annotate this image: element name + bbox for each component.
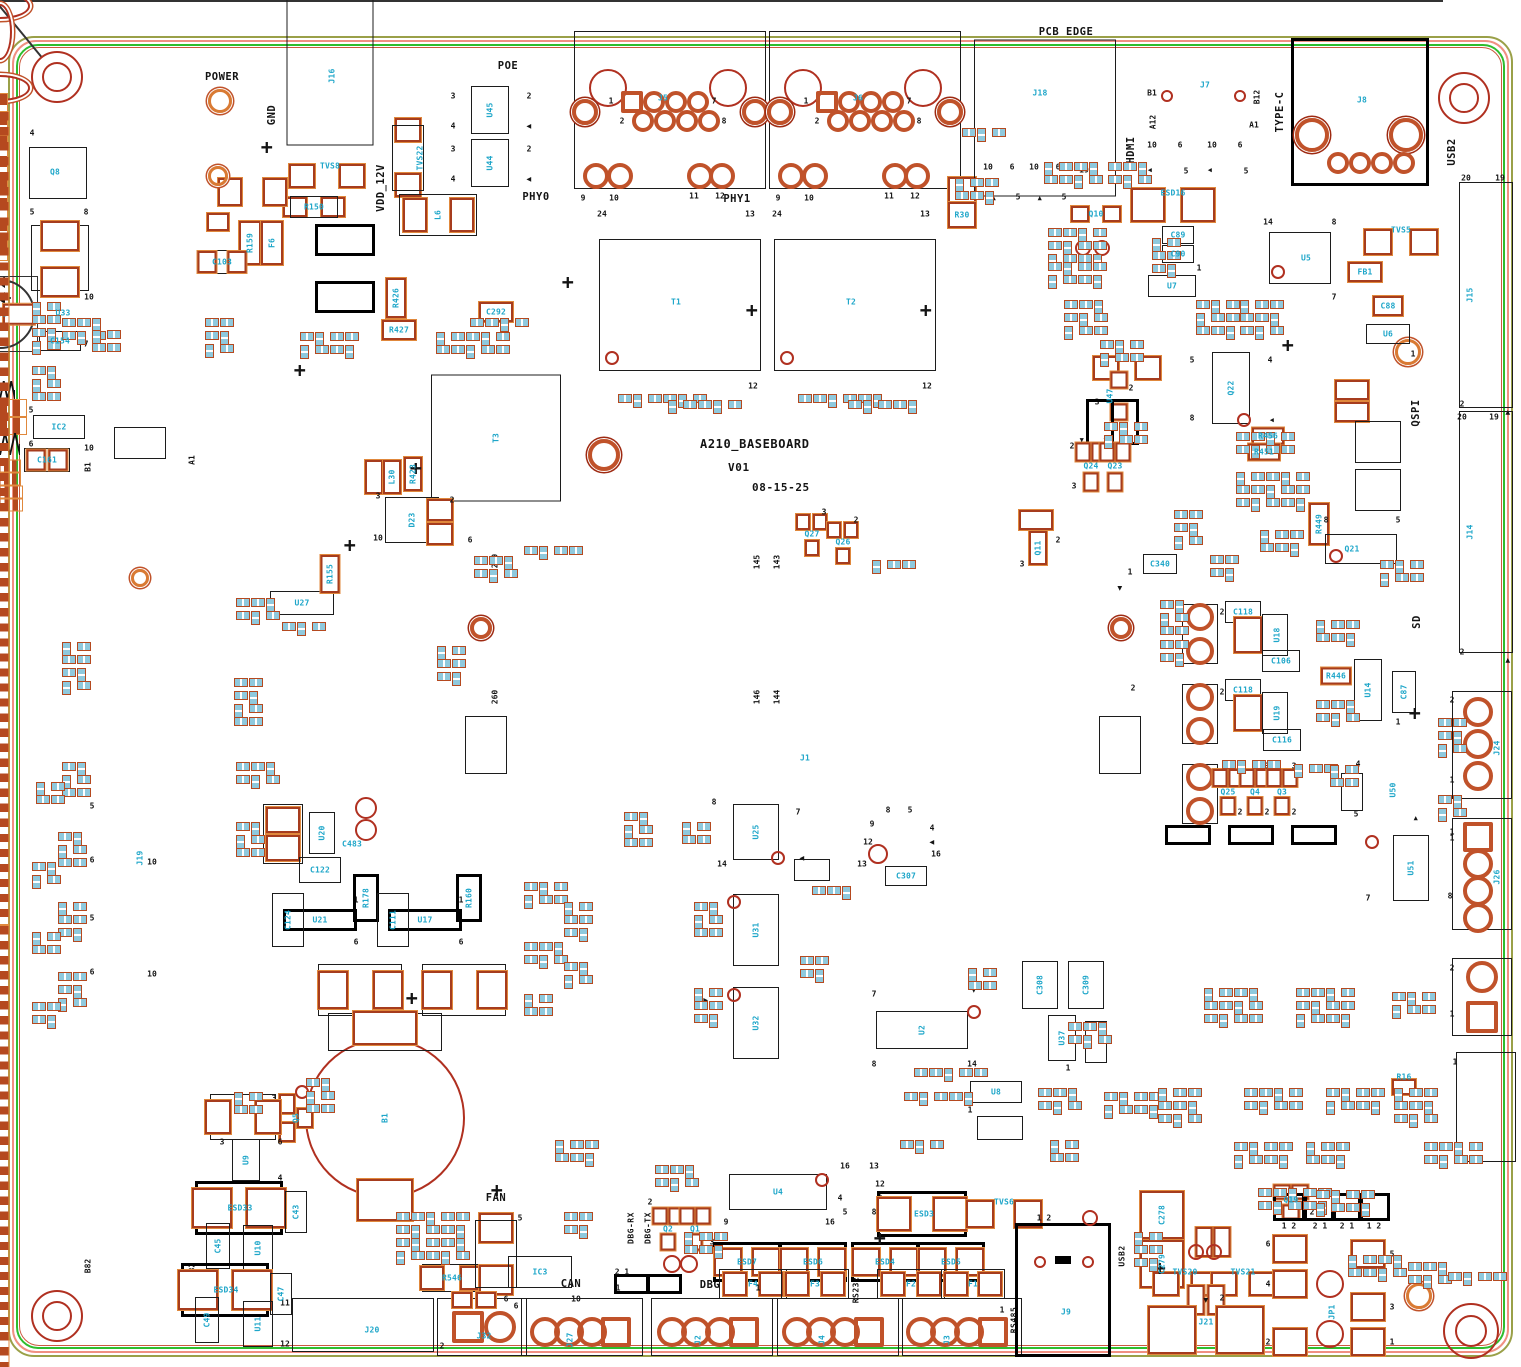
ref-esd3[interactable]: ESD3 bbox=[914, 1210, 934, 1219]
ref-j8[interactable]: J8 bbox=[1357, 96, 1367, 105]
pad[interactable] bbox=[1273, 1270, 1307, 1298]
ring[interactable] bbox=[1349, 152, 1371, 174]
ref-r155[interactable]: R155 bbox=[326, 564, 335, 584]
ref-jp1[interactable]: JP1 bbox=[1328, 1304, 1337, 1319]
pad[interactable] bbox=[1273, 1328, 1307, 1356]
txt--[interactable]: ▼ bbox=[1080, 436, 1085, 444]
hole[interactable] bbox=[1295, 118, 1329, 152]
ref-c278[interactable]: C278 bbox=[1158, 1205, 1167, 1225]
pad[interactable] bbox=[1248, 797, 1263, 815]
txt-usb2[interactable]: USB2 bbox=[1446, 138, 1458, 165]
pad[interactable] bbox=[1275, 797, 1290, 815]
ref-b1[interactable]: B1 bbox=[381, 1113, 390, 1123]
ring[interactable] bbox=[601, 1317, 631, 1347]
ring[interactable] bbox=[1463, 822, 1493, 852]
ref-q26[interactable]: Q26 bbox=[835, 538, 850, 547]
ring[interactable] bbox=[978, 1317, 1008, 1347]
txt--[interactable]: ◀ bbox=[526, 122, 531, 131]
ref-c43[interactable]: C43 bbox=[292, 1204, 301, 1219]
ref-u32[interactable]: U32 bbox=[752, 1015, 761, 1030]
ref-c87[interactable]: C87 bbox=[1400, 684, 1409, 699]
ref-q2[interactable]: Q2 bbox=[663, 1225, 673, 1234]
bbox[interactable] bbox=[315, 224, 375, 256]
pad[interactable] bbox=[836, 548, 850, 564]
ref-u7[interactable]: U7 bbox=[1167, 282, 1177, 291]
ref-j6[interactable]: J6 bbox=[853, 94, 863, 103]
ref-q11[interactable]: Q11 bbox=[1034, 540, 1043, 555]
pad[interactable] bbox=[1108, 473, 1123, 492]
bbox[interactable] bbox=[315, 281, 375, 313]
passive-component bbox=[1454, 1155, 1468, 1164]
txt--[interactable]: ▼ bbox=[1117, 584, 1122, 593]
ref-r159[interactable]: R159 bbox=[246, 233, 255, 253]
ring[interactable] bbox=[1463, 761, 1493, 791]
ref-c279[interactable]: C279 bbox=[1158, 1254, 1167, 1274]
ref-r30[interactable]: R30 bbox=[954, 211, 969, 220]
pad[interactable] bbox=[933, 1197, 967, 1231]
ref-c483[interactable]: C483 bbox=[342, 840, 362, 849]
pad[interactable] bbox=[1181, 188, 1215, 222]
ref-tvs22[interactable]: TVS22 bbox=[416, 145, 425, 170]
pad[interactable] bbox=[1076, 443, 1091, 462]
box[interactable] bbox=[1355, 469, 1401, 511]
ref-u33[interactable]: U33 bbox=[55, 309, 70, 318]
ring[interactable] bbox=[654, 110, 676, 132]
passive-component bbox=[878, 400, 892, 409]
ref-u20[interactable]: U20 bbox=[318, 825, 327, 840]
ref-f4[interactable]: F4 bbox=[748, 1280, 758, 1289]
pad[interactable] bbox=[422, 971, 452, 1009]
ref-f3[interactable]: F3 bbox=[810, 1280, 820, 1289]
ring[interactable] bbox=[904, 163, 930, 189]
txt--[interactable]: ▲ bbox=[1505, 656, 1510, 665]
pad[interactable] bbox=[41, 221, 79, 251]
pad[interactable] bbox=[1213, 769, 1228, 787]
box[interactable] bbox=[1355, 421, 1401, 463]
txt--[interactable]: ◀ bbox=[1270, 416, 1275, 424]
ref-q22[interactable]: Q22 bbox=[1227, 380, 1236, 395]
pad[interactable] bbox=[1335, 402, 1369, 422]
ref-u45[interactable]: U45 bbox=[486, 102, 495, 117]
hole[interactable] bbox=[1389, 118, 1423, 152]
pad[interactable] bbox=[1234, 617, 1262, 653]
box[interactable] bbox=[1099, 716, 1141, 774]
pad[interactable] bbox=[353, 1011, 417, 1045]
ring[interactable] bbox=[676, 110, 698, 132]
pad[interactable] bbox=[785, 1272, 809, 1296]
hole[interactable] bbox=[588, 439, 620, 471]
pad[interactable] bbox=[192, 1188, 232, 1228]
ref-j16[interactable]: J16 bbox=[328, 68, 337, 83]
ref-c103[interactable]: C103 bbox=[212, 258, 232, 267]
ring[interactable] bbox=[1186, 683, 1214, 711]
bbox[interactable] bbox=[1291, 825, 1337, 845]
ref-r150[interactable]: R150 bbox=[304, 203, 324, 212]
ref-q1[interactable]: Q1 bbox=[690, 1225, 700, 1234]
pad[interactable] bbox=[661, 1234, 676, 1251]
txt--[interactable]: ◀ bbox=[1208, 166, 1213, 174]
ref-esd5[interactable]: ESD5 bbox=[941, 1258, 961, 1267]
txt-usb2[interactable]: USB2 bbox=[1118, 1245, 1127, 1266]
ref-u51[interactable]: U51 bbox=[1407, 860, 1416, 875]
ref-r160[interactable]: R160 bbox=[465, 888, 474, 908]
hole[interactable] bbox=[767, 99, 793, 125]
ref-c340[interactable]: C340 bbox=[1150, 560, 1170, 569]
ref-q27[interactable]: Q27 bbox=[804, 530, 819, 539]
txt--[interactable]: ▲ bbox=[1414, 814, 1419, 822]
ref-j7[interactable]: J7 bbox=[1200, 81, 1210, 90]
ref-r456[interactable]: R456 bbox=[1258, 432, 1278, 441]
ref-u31[interactable]: U31 bbox=[752, 922, 761, 937]
ref-q4[interactable]: Q4 bbox=[1250, 788, 1260, 797]
ref-j1[interactable]: J1 bbox=[800, 754, 810, 763]
ref-j21[interactable]: J21 bbox=[1198, 1318, 1213, 1327]
ref-c308[interactable]: C308 bbox=[1036, 975, 1045, 995]
hole[interactable] bbox=[131, 569, 149, 587]
ref-c307[interactable]: C307 bbox=[896, 872, 916, 881]
hole[interactable] bbox=[208, 89, 232, 113]
ring[interactable] bbox=[778, 163, 804, 189]
pad[interactable] bbox=[978, 1272, 1002, 1296]
ref-esd4[interactable]: ESD4 bbox=[875, 1258, 895, 1267]
pad[interactable] bbox=[1019, 510, 1053, 530]
ref-r451[interactable]: R451 bbox=[1254, 448, 1274, 457]
bbox[interactable] bbox=[1015, 1223, 1111, 1357]
txt-phy0[interactable]: PHY0 bbox=[522, 191, 549, 203]
vpads[interactable] bbox=[0, 111, 10, 925]
txt--[interactable]: ◀ bbox=[929, 838, 934, 847]
box[interactable] bbox=[465, 716, 507, 774]
ref-u21[interactable]: U21 bbox=[312, 916, 327, 925]
ref-c106[interactable]: C106 bbox=[1271, 657, 1291, 666]
ref-c116[interactable]: C116 bbox=[1272, 736, 1292, 745]
ref-j15[interactable]: J15 bbox=[1466, 287, 1475, 302]
pad[interactable] bbox=[805, 540, 819, 556]
box[interactable] bbox=[794, 859, 830, 881]
ref-u25[interactable]: U25 bbox=[752, 824, 761, 839]
ref-j9[interactable]: J9 bbox=[1061, 1308, 1071, 1317]
ref-l6[interactable]: L6 bbox=[434, 210, 443, 220]
pad[interactable] bbox=[1148, 1306, 1196, 1354]
ref-j5[interactable]: J5 bbox=[658, 94, 668, 103]
ref-q25[interactable]: Q25 bbox=[1220, 788, 1235, 797]
pad[interactable] bbox=[1071, 206, 1089, 222]
pad[interactable] bbox=[1221, 797, 1236, 815]
ring[interactable] bbox=[854, 1317, 884, 1347]
ref-j4[interactable]: J4 bbox=[818, 1335, 827, 1345]
ref-c90[interactable]: C90 bbox=[1170, 250, 1185, 259]
ring[interactable] bbox=[698, 110, 720, 132]
pad[interactable] bbox=[289, 164, 315, 188]
txt--[interactable]: ◀ bbox=[1148, 166, 1153, 174]
pad[interactable] bbox=[207, 213, 229, 231]
ring[interactable] bbox=[1327, 152, 1349, 174]
ref-c45[interactable]: C45 bbox=[214, 1238, 223, 1253]
box[interactable] bbox=[1456, 1052, 1516, 1162]
ref-fb1[interactable]: FB1 bbox=[1357, 268, 1372, 277]
box[interactable] bbox=[977, 1116, 1023, 1140]
pad[interactable] bbox=[1410, 229, 1438, 255]
pad[interactable] bbox=[827, 522, 841, 538]
txt-sd[interactable]: SD bbox=[1411, 615, 1423, 629]
pad[interactable] bbox=[263, 178, 287, 206]
ref-q10[interactable]: Q10 bbox=[1088, 210, 1103, 219]
ref-j3[interactable]: J3 bbox=[943, 1335, 952, 1345]
pad[interactable] bbox=[41, 267, 79, 297]
pad[interactable] bbox=[759, 1272, 783, 1296]
ref-q24[interactable]: Q24 bbox=[1083, 462, 1098, 471]
ring[interactable] bbox=[1466, 1001, 1498, 1033]
ref-u18[interactable]: U18 bbox=[1273, 627, 1282, 642]
ref-c118[interactable]: C118 bbox=[1233, 686, 1253, 695]
ref-tvs5[interactable]: TVS5 bbox=[1391, 226, 1411, 235]
ref-q8[interactable]: Q8 bbox=[50, 168, 60, 177]
ring[interactable] bbox=[709, 163, 735, 189]
pad[interactable] bbox=[365, 460, 383, 494]
pad[interactable] bbox=[1335, 380, 1369, 400]
pad[interactable] bbox=[279, 1094, 295, 1114]
ref-tvs20[interactable]: TVS20 bbox=[1172, 1268, 1197, 1277]
ring[interactable] bbox=[1186, 717, 1214, 745]
pad[interactable] bbox=[452, 1292, 472, 1308]
pad[interactable] bbox=[723, 1272, 747, 1296]
ref-c154[interactable]: C154 bbox=[50, 337, 70, 346]
txt-type-c[interactable]: TYPE-C bbox=[1274, 92, 1286, 133]
ref-t3[interactable]: T3 bbox=[492, 433, 501, 443]
ref-c124[interactable]: C124 bbox=[284, 910, 293, 930]
ref-u4[interactable]: U4 bbox=[773, 1188, 783, 1197]
ring[interactable] bbox=[729, 1317, 759, 1347]
ring[interactable] bbox=[607, 163, 633, 189]
ref-u47[interactable]: U47 bbox=[1106, 388, 1115, 403]
ref-j18[interactable]: J18 bbox=[1032, 89, 1047, 98]
ring[interactable] bbox=[1463, 876, 1493, 906]
ref-c47[interactable]: C47 bbox=[277, 1286, 286, 1301]
hole[interactable] bbox=[742, 99, 768, 125]
txt-poe[interactable]: POE bbox=[498, 60, 518, 72]
txt-hdmi[interactable]: HDMI bbox=[1125, 136, 1137, 163]
ref-c292[interactable]: C292 bbox=[486, 308, 506, 317]
hole[interactable] bbox=[937, 99, 963, 125]
ref-r426[interactable]: R426 bbox=[392, 288, 401, 308]
ref-j27[interactable]: J27 bbox=[566, 1332, 575, 1347]
ref-r423[interactable]: R423 bbox=[409, 464, 418, 484]
ref-tvs21[interactable]: TVS21 bbox=[1230, 1268, 1255, 1277]
ref-j20[interactable]: J20 bbox=[364, 1326, 379, 1335]
ref-ic2[interactable]: IC2 bbox=[51, 423, 66, 432]
ref-c111[interactable]: C111 bbox=[389, 910, 398, 930]
ref-u17[interactable]: U17 bbox=[417, 916, 432, 925]
txt--[interactable]: ▲ bbox=[1038, 194, 1043, 202]
ref-esd34[interactable]: ESD34 bbox=[213, 1286, 238, 1295]
pad[interactable] bbox=[917, 1272, 941, 1296]
ref-u6[interactable]: U6 bbox=[1383, 330, 1393, 339]
txt-dbg-tx[interactable]: DBG-TX bbox=[644, 1212, 653, 1244]
ring[interactable] bbox=[1371, 152, 1393, 174]
ref-c309[interactable]: C309 bbox=[1082, 975, 1091, 995]
ref-r16[interactable]: R16 bbox=[1396, 1073, 1411, 1082]
pad[interactable] bbox=[680, 1208, 695, 1225]
pad[interactable] bbox=[1364, 229, 1392, 255]
pad[interactable] bbox=[205, 1100, 231, 1134]
ring[interactable] bbox=[1463, 903, 1493, 933]
ref-r546[interactable]: R546 bbox=[442, 1274, 462, 1283]
ring[interactable] bbox=[1466, 961, 1498, 993]
pad[interactable] bbox=[696, 1208, 711, 1225]
ref-j24[interactable]: J24 bbox=[1493, 740, 1502, 755]
pn-1: 1 bbox=[616, 1284, 621, 1293]
txt-qspi[interactable]: QSPI bbox=[1410, 399, 1422, 426]
txt-pcb-edge[interactable]: PCB EDGE bbox=[1039, 26, 1094, 38]
pad[interactable] bbox=[881, 1272, 905, 1296]
ref-j2[interactable]: J2 bbox=[694, 1335, 703, 1345]
ref-tvs6[interactable]: TVS6 bbox=[994, 1198, 1014, 1207]
ref-c161[interactable]: C161 bbox=[37, 456, 57, 465]
ref-c49[interactable]: C49 bbox=[203, 1312, 212, 1327]
ref-c89[interactable]: C89 bbox=[1170, 231, 1185, 240]
pad[interactable] bbox=[420, 1266, 444, 1290]
ref-j14[interactable]: J14 bbox=[1466, 524, 1475, 539]
ref-t1[interactable]: T1 bbox=[671, 298, 681, 307]
ref-t2[interactable]: T2 bbox=[846, 298, 856, 307]
ring[interactable] bbox=[849, 110, 871, 132]
pad[interactable] bbox=[821, 1272, 845, 1296]
ref-j32[interactable]: J32 bbox=[476, 1332, 491, 1341]
txt--[interactable]: ◀ bbox=[526, 175, 531, 184]
ref-u2[interactable]: U2 bbox=[918, 1025, 927, 1035]
txt-gnd[interactable]: GND bbox=[266, 105, 278, 125]
pad[interactable] bbox=[1234, 695, 1262, 731]
ref-u8[interactable]: U8 bbox=[991, 1088, 1001, 1097]
ref-u19[interactable]: U19 bbox=[1273, 705, 1282, 720]
ref-ic3[interactable]: IC3 bbox=[532, 1268, 547, 1277]
ref-u37[interactable]: U37 bbox=[1058, 1030, 1067, 1045]
txt-phy1[interactable]: PHY1 bbox=[723, 193, 750, 205]
ring[interactable] bbox=[1186, 797, 1214, 825]
pad[interactable] bbox=[339, 164, 365, 188]
pad[interactable] bbox=[427, 523, 453, 545]
passive-component bbox=[1160, 613, 1169, 627]
pad[interactable] bbox=[1351, 1328, 1385, 1356]
ref-f6[interactable]: F6 bbox=[268, 238, 277, 248]
ring[interactable] bbox=[1463, 729, 1493, 759]
ref-j26[interactable]: J26 bbox=[1493, 869, 1502, 884]
ring[interactable] bbox=[827, 110, 849, 132]
pad[interactable] bbox=[318, 971, 348, 1009]
box[interactable] bbox=[263, 804, 303, 864]
pad[interactable] bbox=[1267, 769, 1282, 787]
pad[interactable] bbox=[1111, 372, 1128, 389]
hole[interactable] bbox=[572, 99, 598, 125]
ref-esd16[interactable]: ESD16 bbox=[1160, 189, 1185, 198]
box[interactable] bbox=[292, 1298, 434, 1352]
ring[interactable] bbox=[1186, 637, 1214, 665]
pad[interactable] bbox=[1351, 1293, 1385, 1321]
ring[interactable] bbox=[802, 163, 828, 189]
pad[interactable] bbox=[653, 1208, 668, 1225]
pad[interactable] bbox=[1116, 443, 1131, 462]
txt--[interactable]: ▼ bbox=[1203, 1296, 1208, 1305]
pad[interactable] bbox=[944, 1272, 968, 1296]
pad[interactable] bbox=[476, 1292, 496, 1308]
bbox[interactable] bbox=[646, 1274, 682, 1294]
ring[interactable] bbox=[583, 163, 609, 189]
ref-f2[interactable]: F2 bbox=[906, 1280, 916, 1289]
txt-dbg-rx[interactable]: DBG-RX bbox=[627, 1212, 636, 1244]
ref-esd33[interactable]: ESD33 bbox=[227, 1204, 252, 1213]
ref-c122[interactable]: C122 bbox=[310, 866, 330, 875]
ref-r449[interactable]: R449 bbox=[1315, 514, 1324, 534]
bbox[interactable] bbox=[1165, 825, 1211, 845]
ref-r178[interactable]: R178 bbox=[362, 888, 371, 908]
ref-j19[interactable]: J19 bbox=[136, 850, 145, 865]
box[interactable] bbox=[114, 427, 166, 459]
passive-component bbox=[1134, 1092, 1148, 1101]
passive-component bbox=[694, 928, 708, 937]
ref-u5[interactable]: U5 bbox=[1301, 254, 1311, 263]
ref-q19[interactable]: Q19 bbox=[1283, 1196, 1298, 1205]
pad[interactable] bbox=[1216, 1306, 1264, 1354]
ring[interactable] bbox=[871, 110, 893, 132]
ring[interactable] bbox=[1186, 603, 1214, 631]
pad[interactable] bbox=[373, 971, 403, 1009]
hole[interactable] bbox=[208, 166, 228, 186]
ref-u9[interactable]: U9 bbox=[242, 1155, 251, 1165]
ref-esd7[interactable]: ESD7 bbox=[737, 1258, 757, 1267]
ring[interactable] bbox=[893, 110, 915, 132]
ref-u27[interactable]: U27 bbox=[294, 599, 309, 608]
ref-q3[interactable]: Q3 bbox=[1277, 788, 1287, 797]
pad[interactable] bbox=[1084, 473, 1099, 492]
ref-d23[interactable]: D23 bbox=[408, 512, 417, 527]
hole[interactable] bbox=[1110, 617, 1132, 639]
ring[interactable] bbox=[632, 110, 654, 132]
pad[interactable] bbox=[796, 514, 810, 530]
ring[interactable] bbox=[1463, 849, 1493, 879]
hole[interactable] bbox=[470, 617, 492, 639]
ref-esd6[interactable]: ESD6 bbox=[803, 1258, 823, 1267]
pad[interactable] bbox=[1273, 1235, 1307, 1263]
ref-f1[interactable]: F1 bbox=[968, 1280, 978, 1289]
ref-u44[interactable]: U44 bbox=[486, 155, 495, 170]
pn-11: 11 bbox=[689, 192, 699, 201]
ref-l30[interactable]: L30 bbox=[388, 469, 397, 484]
ref-q21[interactable]: Q21 bbox=[1344, 545, 1359, 554]
ref-c118[interactable]: C118 bbox=[1233, 608, 1253, 617]
pad[interactable] bbox=[1103, 206, 1121, 222]
ref-c88[interactable]: C88 bbox=[1380, 302, 1395, 311]
ref-q23[interactable]: Q23 bbox=[1107, 462, 1122, 471]
ref-u14[interactable]: U14 bbox=[1364, 682, 1373, 697]
pad[interactable] bbox=[966, 1200, 994, 1228]
fpad[interactable] bbox=[1055, 1256, 1071, 1264]
txt-power[interactable]: POWER bbox=[205, 71, 239, 83]
ref-u10[interactable]: U10 bbox=[254, 1240, 263, 1255]
ring[interactable] bbox=[1186, 763, 1214, 791]
vpads[interactable] bbox=[0, 925, 10, 1367]
txt-vdd-12v[interactable]: VDD_12V bbox=[375, 164, 387, 212]
ring[interactable] bbox=[1463, 697, 1493, 727]
ref-u11[interactable]: U11 bbox=[254, 1316, 263, 1331]
ref-r446[interactable]: R446 bbox=[1326, 672, 1346, 681]
ring[interactable] bbox=[1393, 152, 1415, 174]
pad[interactable] bbox=[477, 971, 507, 1009]
ref-r427[interactable]: R427 bbox=[389, 326, 409, 335]
ref-q5[interactable]: Q5 bbox=[292, 1113, 301, 1123]
ref-tvs8[interactable]: TVS8 bbox=[320, 162, 340, 171]
bbox[interactable] bbox=[1228, 825, 1274, 845]
ref-u50[interactable]: U50 bbox=[1389, 782, 1398, 797]
